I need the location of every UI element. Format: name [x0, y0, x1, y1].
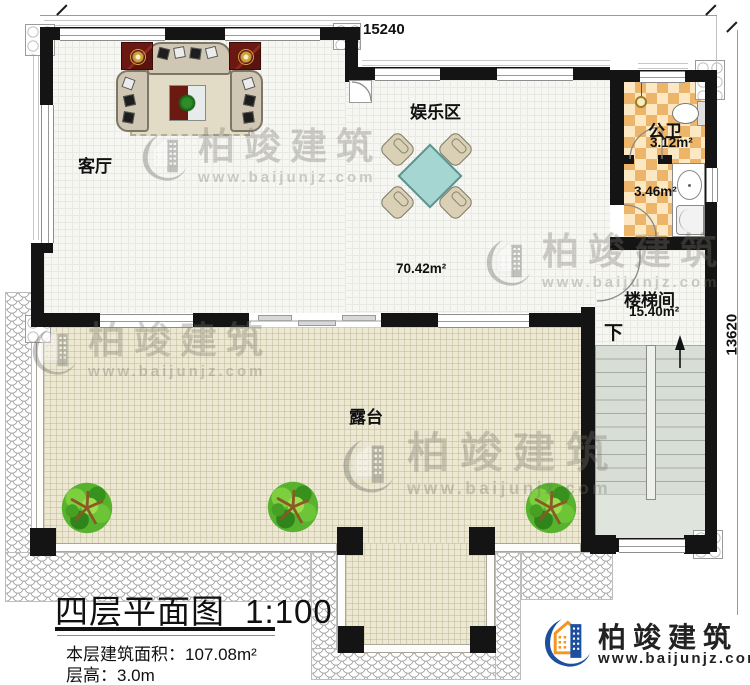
floor-height-value: 3.0m [117, 666, 155, 685]
room-label-living: 客厅 [78, 152, 112, 177]
brand-logo-icon [540, 612, 594, 670]
window [438, 314, 529, 328]
column [469, 527, 495, 555]
floor-plan-canvas: 柏竣建筑 www.baijunjz.com 柏竣建筑 www.baijunjz.… [0, 0, 750, 685]
terrace-protrusion-floor [346, 543, 486, 644]
stair-railing [646, 345, 656, 500]
stair-landing [595, 495, 707, 538]
frame-line [638, 63, 688, 69]
column [684, 535, 710, 554]
dimension-line-top [40, 15, 717, 16]
wall [40, 27, 53, 105]
pillow [189, 47, 201, 59]
pillow [122, 111, 135, 124]
terrace-parapet-left [36, 327, 44, 552]
door-opening [610, 205, 624, 237]
pendant-light-icon [635, 96, 647, 108]
window [375, 68, 440, 81]
terrace-parapet-bottom-right [486, 543, 581, 552]
floor-height-line: 层高：3.0m [66, 661, 155, 685]
tree-icon [523, 480, 579, 536]
frame-line [362, 60, 610, 66]
column [590, 535, 616, 554]
sink-drain [688, 184, 691, 187]
column [337, 527, 363, 555]
lamp-icon [130, 49, 146, 65]
terrace-parapet-bottom-left [44, 543, 337, 552]
room-area-bath-outer: 3.46m² [634, 184, 677, 199]
window [619, 539, 685, 553]
roof-tile-band-protrusion-right [495, 552, 521, 680]
frame-line [33, 32, 39, 240]
room-area-stairwell: 15.40m² [629, 304, 679, 319]
sliding-door-panel [258, 315, 292, 321]
wall [610, 237, 717, 250]
room-area-bath: 3.12m² [650, 135, 693, 150]
wall [658, 155, 672, 164]
lamp-icon [238, 49, 254, 65]
room-label-entertainment: 娱乐区 [410, 98, 461, 123]
pillow [243, 94, 256, 107]
wall [610, 70, 624, 205]
pillow [173, 46, 186, 59]
side-table-right [229, 42, 261, 70]
column [30, 528, 56, 556]
window [60, 28, 165, 41]
room-area-main: 70.42m² [396, 261, 446, 276]
floor-area-value: 107.08m² [185, 645, 257, 664]
frame-line [44, 20, 360, 26]
window [640, 71, 685, 83]
pillow [123, 94, 136, 107]
notch [349, 80, 372, 103]
wall [193, 313, 249, 327]
dimension-label-right: 13620 [724, 316, 741, 356]
floor-height-label: 层高： [66, 666, 117, 685]
window [497, 68, 573, 81]
wall [31, 313, 100, 327]
plan-title: 四层平面图 1:100 [55, 585, 333, 633]
column [338, 626, 364, 653]
wall [581, 307, 595, 552]
window [100, 314, 193, 328]
sliding-door-panel [298, 320, 336, 326]
washing-machine-door [679, 209, 700, 231]
wall [345, 40, 358, 82]
room-label-terrace: 露台 [349, 403, 383, 428]
side-table-left [121, 42, 153, 70]
wall [624, 155, 634, 164]
dimension-label-top: 15240 [363, 21, 405, 38]
brand-website: www.baijunjz.com [598, 650, 750, 667]
plant-icon [178, 94, 196, 112]
window [41, 105, 54, 243]
pillow [242, 111, 254, 123]
window [225, 28, 320, 41]
wall [705, 70, 717, 552]
tree-icon [59, 480, 115, 536]
plan-title-text: 四层平面图 [55, 593, 225, 630]
sliding-door-panel [342, 315, 376, 321]
column [470, 626, 496, 653]
title-underline-thin [57, 635, 275, 636]
window [706, 168, 718, 202]
tree-icon [265, 479, 321, 535]
extension-line [716, 16, 717, 70]
title-underline-thick [55, 627, 275, 631]
roof-tile-band-right [521, 552, 613, 600]
stair-down-label: 下 [604, 318, 623, 345]
wall [381, 313, 438, 327]
plan-scale: 1:100 [245, 593, 333, 630]
